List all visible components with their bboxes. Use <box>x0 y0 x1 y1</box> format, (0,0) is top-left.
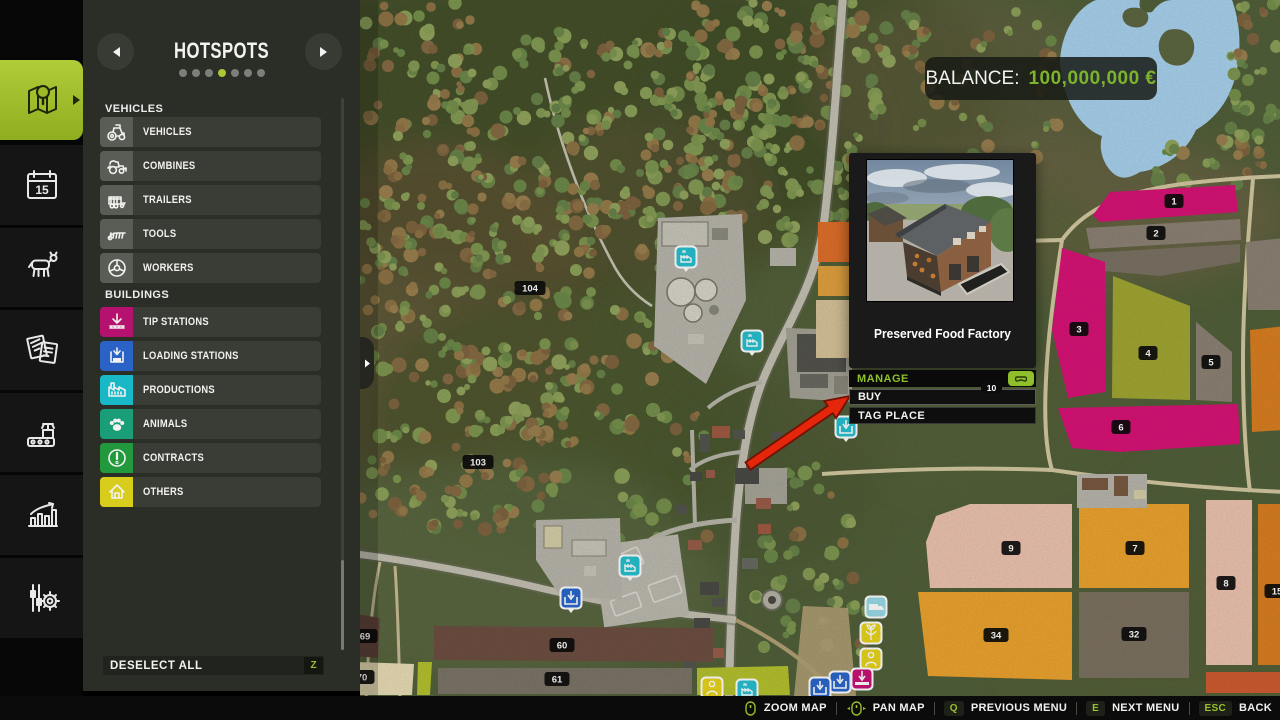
svg-text:15: 15 <box>35 183 49 197</box>
